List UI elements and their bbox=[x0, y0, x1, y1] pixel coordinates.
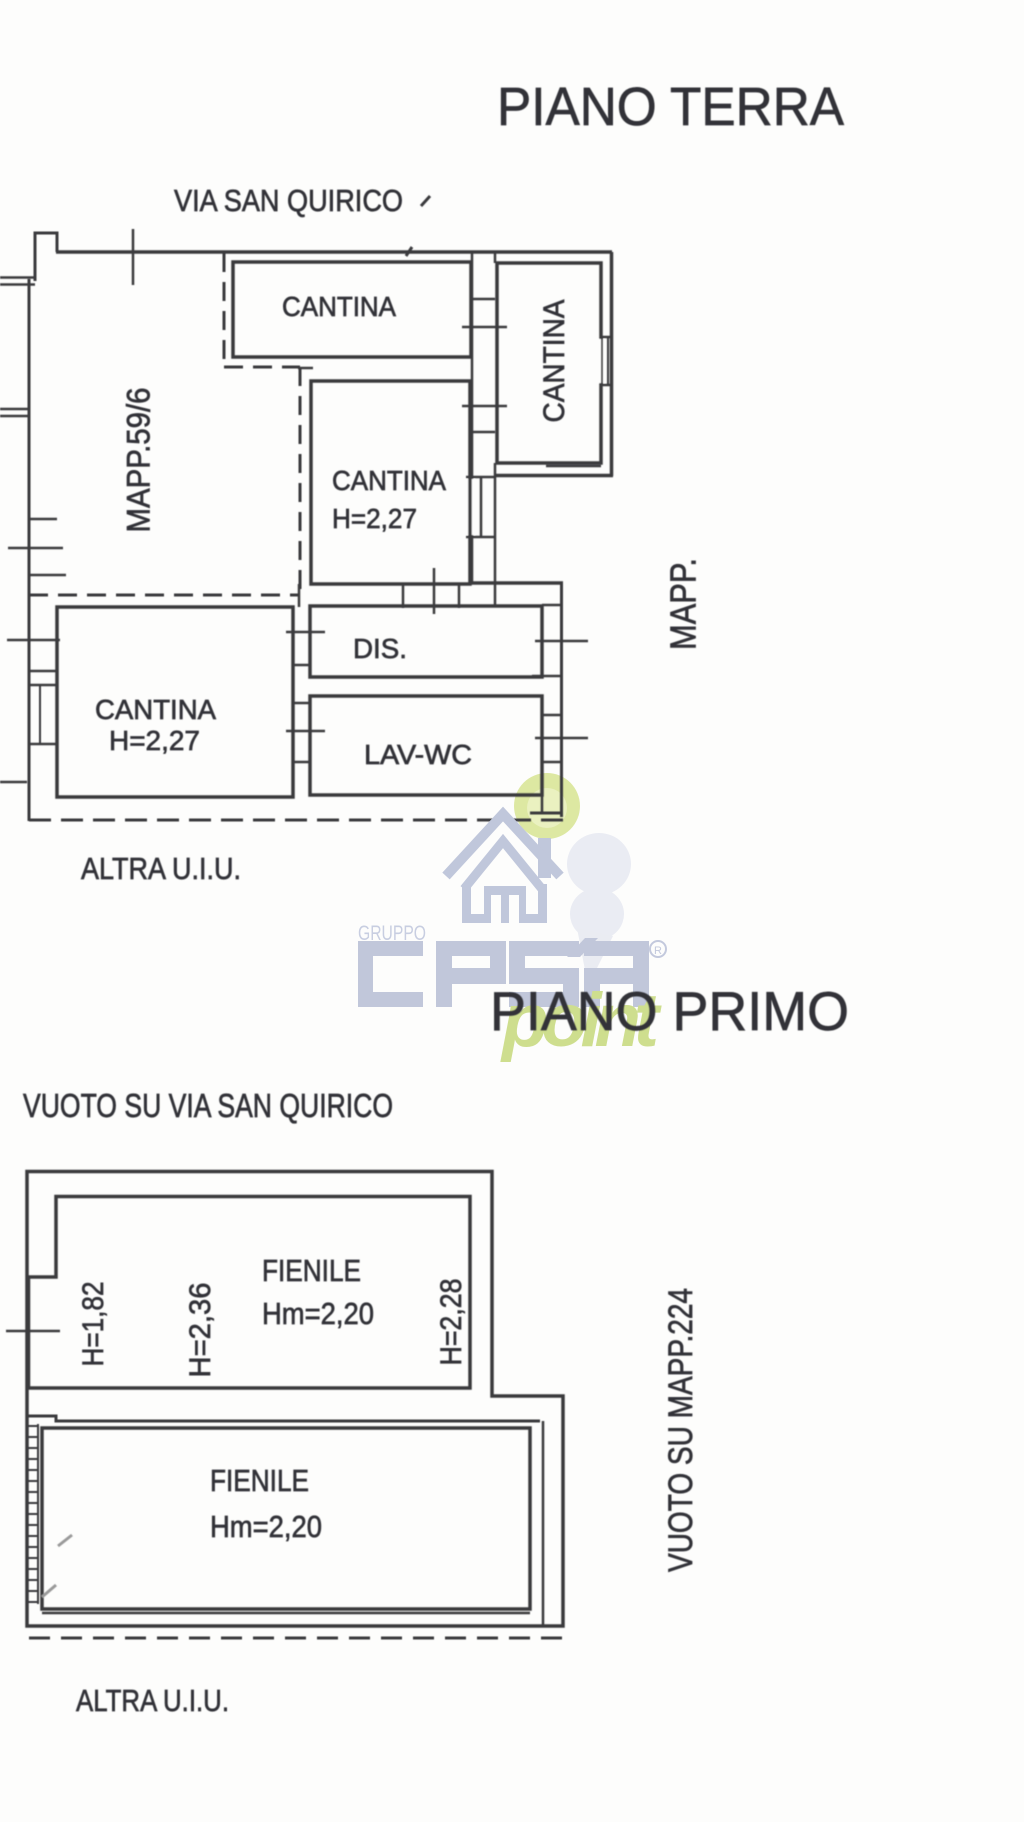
svg-text:PIANO TERRA: PIANO TERRA bbox=[497, 77, 844, 137]
svg-text:R: R bbox=[654, 945, 662, 957]
svg-text:ALTRA U.I.U.: ALTRA U.I.U. bbox=[81, 851, 241, 886]
svg-text:FIENILE: FIENILE bbox=[262, 1253, 361, 1288]
svg-text:VUOTO SU MAPP.224: VUOTO SU MAPP.224 bbox=[662, 1288, 700, 1572]
svg-text:H=2,36: H=2,36 bbox=[184, 1283, 217, 1378]
svg-text:CANTINA: CANTINA bbox=[95, 694, 216, 725]
svg-text:VUOTO SU VIA SAN QUIRICO: VUOTO SU VIA SAN QUIRICO bbox=[23, 1087, 393, 1124]
svg-text:DIS.: DIS. bbox=[353, 633, 407, 664]
svg-text:MAPP.: MAPP. bbox=[663, 558, 704, 650]
svg-text:CANTINA: CANTINA bbox=[332, 465, 446, 496]
svg-text:Hm=2,20: Hm=2,20 bbox=[210, 1509, 322, 1544]
svg-text:FIENILE: FIENILE bbox=[210, 1463, 309, 1498]
svg-text:H=2,27: H=2,27 bbox=[332, 503, 417, 534]
svg-text:ALTRA U.I.U.: ALTRA U.I.U. bbox=[76, 1683, 229, 1718]
svg-text:CANTINA: CANTINA bbox=[282, 291, 396, 322]
svg-text:H=2,27: H=2,27 bbox=[109, 725, 200, 756]
svg-text:CANTINA: CANTINA bbox=[538, 300, 571, 423]
svg-text:H=1,82: H=1,82 bbox=[77, 1282, 110, 1367]
svg-text:MAPP.59/6: MAPP.59/6 bbox=[120, 388, 156, 533]
svg-text:VIA SAN QUIRICO: VIA SAN QUIRICO bbox=[174, 183, 403, 218]
svg-text:H=2,28: H=2,28 bbox=[435, 1279, 468, 1366]
svg-text:PIANO PRIMO: PIANO PRIMO bbox=[490, 980, 849, 1042]
svg-text:LAV-WC: LAV-WC bbox=[364, 739, 472, 770]
svg-text:Hm=2,20: Hm=2,20 bbox=[262, 1296, 374, 1331]
